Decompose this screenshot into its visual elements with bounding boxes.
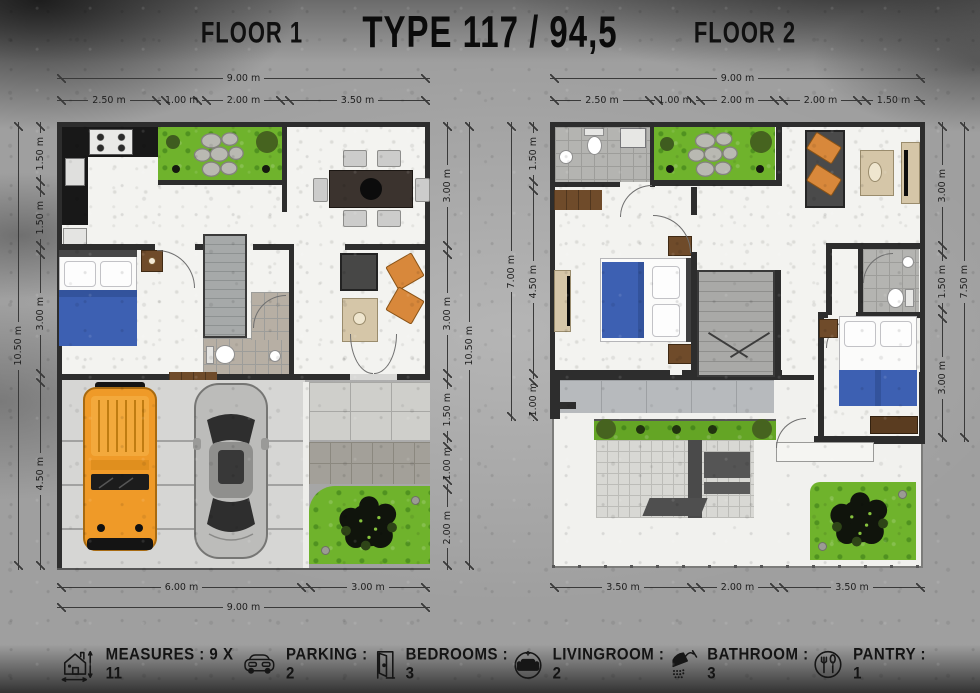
toilet <box>905 289 914 307</box>
sofa-icon <box>512 647 544 682</box>
bathroom-drain <box>269 350 281 362</box>
dresser <box>870 416 918 434</box>
terrace-walkway <box>556 380 774 413</box>
tv <box>567 276 570 326</box>
wall <box>560 402 576 409</box>
tree <box>323 488 415 562</box>
toilet <box>206 346 214 364</box>
blanket-fold <box>638 262 644 338</box>
bush <box>166 135 180 149</box>
bush <box>660 137 674 151</box>
garden-strip <box>158 127 282 183</box>
dining-chair <box>343 150 367 167</box>
shrub <box>636 425 645 434</box>
bed-blanket <box>59 290 137 346</box>
wall <box>919 372 925 444</box>
dining-chair <box>343 210 367 227</box>
dimension: 2.00 m <box>779 94 862 106</box>
wall <box>550 182 620 187</box>
dimension: 1.00 m <box>441 442 453 485</box>
desk-chair <box>868 162 882 182</box>
floor2-label: FLOOR 2 <box>550 20 940 46</box>
toilet <box>887 288 904 308</box>
legend-measures: MEASURES : 9 X 11 <box>60 646 242 683</box>
dimension: 2.50 m <box>550 94 654 106</box>
dining-chair <box>377 150 401 167</box>
blanket-fold <box>875 370 881 406</box>
garden-stones <box>684 129 746 181</box>
dimension: 2.50 m <box>57 94 161 106</box>
pillow <box>880 321 912 347</box>
nightstand <box>819 319 838 338</box>
table-centerpiece <box>360 178 382 200</box>
shrub <box>708 425 717 434</box>
legend-bedrooms: BEDROOMS : 3 <box>373 647 512 682</box>
sink <box>620 128 646 148</box>
wall <box>550 377 560 419</box>
door-icon <box>373 647 397 682</box>
dimension: 1.00 m <box>654 94 696 106</box>
garden-front <box>309 486 430 564</box>
planter-strip <box>594 421 776 440</box>
bed-headboard <box>59 250 137 257</box>
nightstand <box>668 344 692 364</box>
pillow <box>64 261 96 287</box>
house-measure-icon <box>60 646 97 683</box>
dimension: 1.50 m <box>527 122 539 186</box>
stair-chevron <box>730 332 770 358</box>
wall <box>691 187 697 215</box>
dimension: 4.50 m <box>527 186 539 378</box>
roof-panel <box>704 452 750 478</box>
wall <box>776 127 782 186</box>
dimension-f2-left-total: 7.00 m <box>505 122 517 421</box>
dimension: 1.00 m <box>527 378 539 421</box>
wall <box>253 244 289 250</box>
legend-parking: PARKING : 2 <box>242 647 373 681</box>
dimension: 1.00 m <box>161 94 202 106</box>
dimension: 2.00 m <box>441 485 453 570</box>
jeep-vehicle <box>79 382 161 556</box>
stairs <box>697 270 775 377</box>
legend-pantry: PANTRY : 1 <box>812 647 932 682</box>
terrace-railing <box>552 565 923 568</box>
pillow <box>652 304 680 337</box>
dimension: 1.50 m <box>862 94 925 106</box>
entry-gap <box>350 374 397 380</box>
wall <box>550 370 670 377</box>
legend-bathroom: BATHROOM : 3 <box>667 646 812 682</box>
plot-edge <box>57 568 430 570</box>
car-icon <box>242 651 277 677</box>
bush <box>262 165 270 173</box>
dimension-f1-left-total: 10.50 m <box>12 122 24 570</box>
dimension: 6.00 m <box>57 581 306 593</box>
stone-pavement <box>309 442 430 484</box>
tree <box>814 484 906 558</box>
dimension: 1.50 m <box>34 186 46 250</box>
stair-chevron <box>708 332 748 358</box>
car-vehicle <box>191 382 271 560</box>
floor2-plan <box>550 122 925 570</box>
dining-chair <box>313 178 328 202</box>
roof-deck-tiles <box>596 440 754 518</box>
legend-bar: MEASURES : 9 X 11 PARKING : 2 BEDROOMS :… <box>0 638 980 690</box>
dimension: 3.50 m <box>779 581 925 593</box>
dimension: 3.00 m <box>441 250 453 378</box>
toilet <box>584 128 604 136</box>
pebble <box>818 542 827 551</box>
pebble <box>411 496 420 505</box>
wall <box>654 180 782 186</box>
wall <box>775 270 781 377</box>
dimension-f1-bottom-total: 9.00 m <box>57 601 430 613</box>
shower-icon <box>667 646 698 682</box>
floor1-plan <box>57 122 430 570</box>
pebble <box>898 490 907 499</box>
wood-door <box>169 372 217 380</box>
wall <box>282 127 287 212</box>
pillow <box>652 266 680 299</box>
bush <box>750 131 772 153</box>
dimension: 3.00 m <box>936 122 948 250</box>
roof-panel <box>642 498 707 516</box>
kitchen-sink <box>65 158 85 186</box>
table-decor <box>353 312 366 325</box>
pillow <box>844 321 876 347</box>
lamp <box>148 257 156 265</box>
legend-livingroom: LIVINGROOM : 2 <box>512 647 668 682</box>
stove-icon <box>89 129 133 155</box>
dimension: 3.00 m <box>306 581 430 593</box>
shrub <box>752 419 772 439</box>
pillow <box>100 261 132 287</box>
stairs <box>203 234 247 338</box>
blanket-fold <box>59 290 137 297</box>
sofa <box>340 253 378 291</box>
floorplan-poster: { "header": { "floor1_label": "FLOOR 1",… <box>0 0 980 693</box>
wall <box>158 180 287 185</box>
dining-chair <box>415 178 430 202</box>
cutlery-icon <box>812 647 844 682</box>
shrub <box>672 425 681 434</box>
shower-drain <box>559 150 573 164</box>
terrace-garden <box>810 482 916 560</box>
dimension: 3.50 m <box>550 581 696 593</box>
dimension: 3.00 m <box>441 122 453 250</box>
dimension: 1.50 m <box>34 122 46 186</box>
dimension: 3.50 m <box>285 94 430 106</box>
bush <box>172 165 180 173</box>
walk-path <box>309 382 430 440</box>
dimension: 3.00 m <box>936 314 948 442</box>
dimension: 4.50 m <box>34 378 46 570</box>
garden-stones <box>190 129 252 181</box>
bush <box>666 165 674 173</box>
bush <box>256 131 278 153</box>
dimension: 1.50 m <box>936 250 948 314</box>
tv <box>904 150 908 196</box>
pebble <box>321 546 330 555</box>
dimension: 2.00 m <box>202 94 285 106</box>
sink <box>902 256 914 268</box>
dimension: 3.00 m <box>34 250 46 378</box>
dimension: 2.00 m <box>696 581 779 593</box>
garden-strip <box>654 127 775 182</box>
toilet <box>215 345 235 364</box>
wood-floor-strip <box>554 190 602 210</box>
dimension-f2-top-total: 9.00 m <box>550 72 925 84</box>
dimension-f1-top-total: 9.00 m <box>57 72 430 84</box>
wall <box>195 244 203 250</box>
dimension: 1.50 m <box>441 378 453 442</box>
roof-panel <box>704 482 750 494</box>
dimension-f1-right-total: 10.50 m <box>463 122 475 570</box>
wall <box>345 244 430 250</box>
dining-chair <box>377 210 401 227</box>
toilet <box>587 136 602 155</box>
wall <box>57 380 62 570</box>
shrub <box>596 419 616 439</box>
bush <box>756 165 764 173</box>
wall <box>289 244 294 374</box>
dimension-f2-right-total: 7.50 m <box>958 122 970 442</box>
wall <box>826 243 832 315</box>
dimension: 2.00 m <box>696 94 779 106</box>
